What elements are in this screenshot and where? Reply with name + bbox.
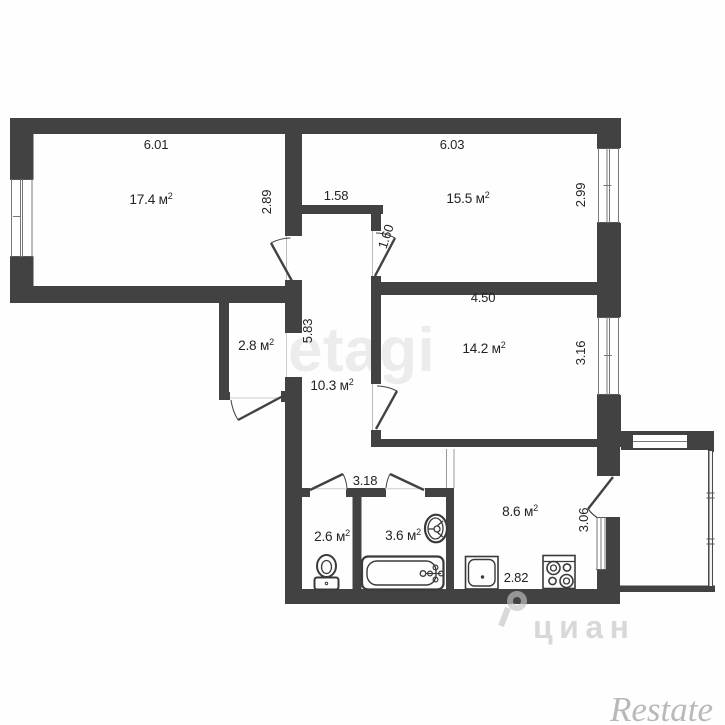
svg-text:3.16: 3.16 bbox=[573, 341, 588, 366]
svg-text:17.4 м2: 17.4 м2 bbox=[129, 191, 172, 207]
svg-text:2.82: 2.82 bbox=[504, 570, 529, 585]
svg-text:3.6 м2: 3.6 м2 bbox=[385, 527, 421, 543]
svg-text:14.2 м2: 14.2 м2 bbox=[462, 340, 505, 356]
svg-text:2.6 м2: 2.6 м2 bbox=[314, 528, 350, 544]
svg-text:2.8 м2: 2.8 м2 bbox=[238, 337, 274, 353]
svg-text:2.99: 2.99 bbox=[573, 183, 588, 208]
svg-text:5.83: 5.83 bbox=[300, 319, 315, 344]
svg-text:3.06: 3.06 bbox=[576, 508, 591, 533]
svg-text:15.5 м2: 15.5 м2 bbox=[446, 190, 489, 206]
svg-text:6.01: 6.01 bbox=[144, 137, 169, 152]
svg-text:6.03: 6.03 bbox=[440, 137, 465, 152]
svg-text:1.58: 1.58 bbox=[324, 188, 349, 203]
svg-text:3.18: 3.18 bbox=[353, 473, 378, 488]
svg-text:2.89: 2.89 bbox=[259, 190, 274, 215]
svg-text:8.6 м2: 8.6 м2 bbox=[502, 503, 538, 519]
svg-text:10.3 м2: 10.3 м2 bbox=[310, 377, 353, 393]
svg-text:циан: циан bbox=[533, 609, 635, 645]
svg-text:Restate: Restate bbox=[609, 690, 713, 725]
svg-text:4.50: 4.50 bbox=[471, 290, 496, 305]
